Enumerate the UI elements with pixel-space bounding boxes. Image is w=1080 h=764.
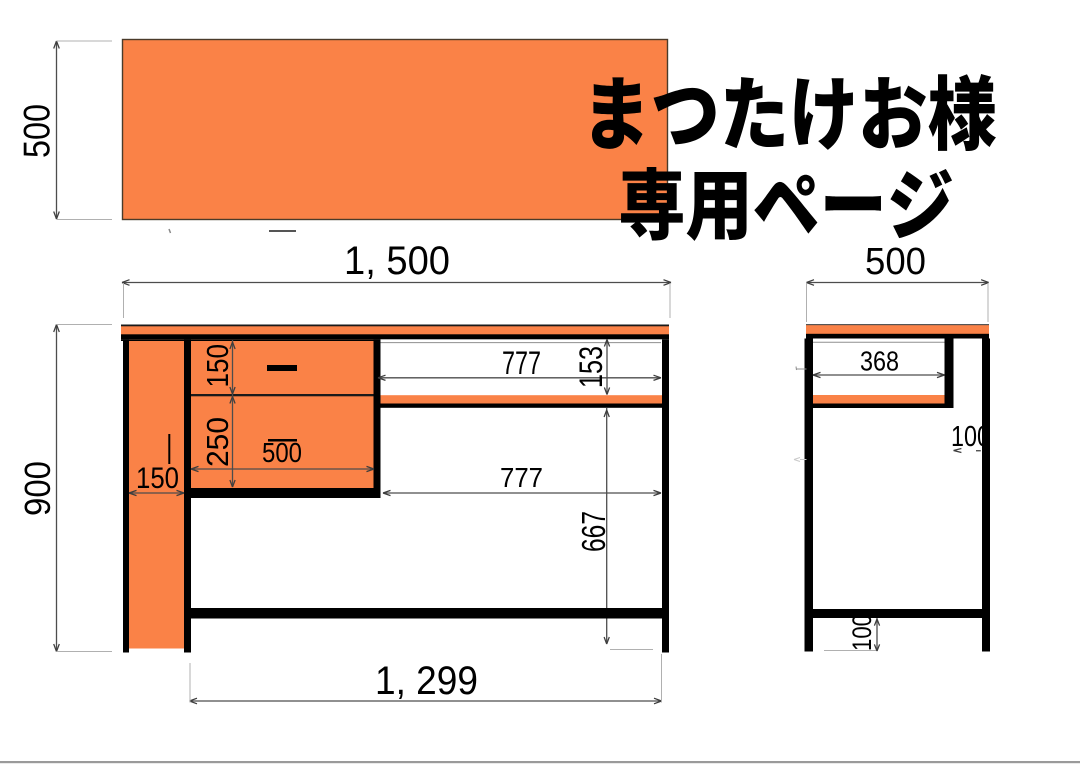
svg-text:150: 150 [200, 344, 235, 388]
svg-text:500: 500 [865, 241, 926, 283]
svg-text:250: 250 [200, 417, 235, 467]
svg-text:500: 500 [262, 437, 302, 468]
svg-text:153: 153 [573, 346, 609, 388]
svg-text:900: 900 [17, 461, 58, 516]
svg-text:1, 500: 1, 500 [344, 239, 450, 283]
svg-text:100: 100 [847, 614, 877, 651]
svg-text:500: 500 [17, 104, 58, 158]
svg-text:1, 299: 1, 299 [375, 659, 478, 703]
svg-text:100: 100 [951, 421, 990, 453]
svg-text:368: 368 [860, 346, 899, 377]
svg-text:150: 150 [136, 462, 179, 495]
svg-text:777: 777 [502, 345, 541, 381]
svg-text:777: 777 [500, 462, 543, 493]
